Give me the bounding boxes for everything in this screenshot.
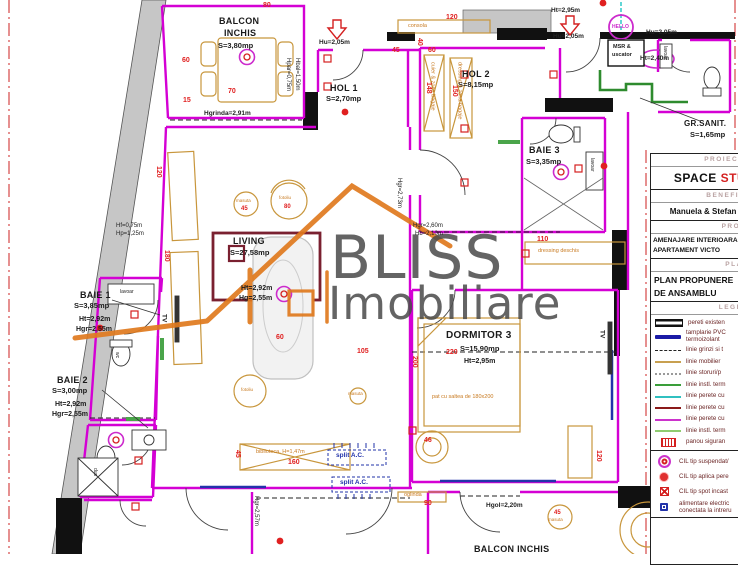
legend-item: linie grinzi si t — [651, 345, 738, 357]
legend-item: CIL tip spot incast — [651, 484, 738, 499]
sink-label: lavoar — [662, 46, 667, 60]
dimension-label: 45 — [234, 450, 241, 458]
legend: pereti existen tamplarie PVC termoizolan… — [651, 315, 738, 451]
room-balcon-bottom-name: BALCON INCHIS — [474, 545, 549, 555]
wardrobe-label: cuier & zona bagaje — [429, 62, 435, 111]
titleblock-header-proiect: PROIECT — [651, 221, 738, 234]
height-annotation: Hp=1,25m — [116, 231, 144, 237]
legend-item: alimentare electric conectata la intreru — [651, 499, 738, 514]
room-baie1-name: BAIE 1 — [80, 291, 111, 301]
legend-label: CIL tip suspendat/ — [679, 458, 729, 465]
dressing-label: dressing deschis — [538, 249, 579, 255]
bed-label: pat cu saltea de 180x200 — [432, 395, 493, 401]
room-dormitor3-ht: Ht=2,95m — [464, 358, 495, 366]
side-table-label: masuta — [348, 392, 363, 397]
tv-label: TV — [160, 314, 167, 322]
sink-label: lavoar — [589, 158, 594, 172]
couch — [253, 237, 313, 379]
legend-swatch-wall-line-magenta-icon — [655, 419, 681, 421]
legend-label: panou siguran — [686, 439, 725, 446]
legend-swatch-beam-line-icon — [655, 350, 681, 351]
room-baie2-hgr: Hgr=2,55m — [52, 411, 88, 419]
height-annotation: Hgol=2,20m — [486, 503, 523, 510]
hello-mat-label: HELLO — [612, 25, 629, 30]
titleblock-client: Manuela & Stefan Mo — [651, 203, 738, 221]
legend-item: linie instl. term — [651, 379, 738, 391]
titleblock-header-proiectant: PROIECTANT — [651, 154, 738, 167]
legend-label: linie instl. term — [686, 382, 726, 389]
dimension-label: 105 — [357, 348, 369, 355]
legend-swatch-pvc-window-icon — [655, 335, 681, 339]
legend-label: CIL tip aplica pere — [679, 473, 729, 480]
room-dormitor3-area: S=15,90mp — [460, 345, 499, 353]
dimension-label: 60 — [182, 57, 190, 64]
legend-swatch-wall-line-cyan-icon — [655, 396, 681, 398]
armchair-label: fotoliu — [279, 196, 291, 201]
dimension-label: 46 — [424, 437, 432, 444]
msr-label-line1: MSR & — [613, 45, 631, 51]
dimension-label: 120 — [155, 166, 162, 178]
sheet-line1: PLAN PROPUNERE — [654, 274, 738, 287]
height-annotation: Hu=2,05m — [646, 30, 677, 37]
height-annotation: Hbal=1,50m — [294, 58, 300, 91]
titleblock-header-plansa: PLANSA — [651, 259, 738, 272]
dimension-label: 40 — [416, 38, 423, 46]
legend-swatch-fusebox-icon — [655, 438, 681, 447]
titleblock-empty-box — [651, 518, 738, 564]
dimension-label: 120 — [595, 450, 602, 462]
project-line2: APARTAMENT VICTO — [653, 246, 738, 256]
side-table-dim: 45 — [554, 510, 561, 516]
room-living-ht: Ht=2,92m — [241, 285, 272, 293]
room-grsanit-name: GR.SANIT. — [684, 120, 726, 129]
room-baie2-name: BAIE 2 — [57, 376, 88, 386]
room-baie1-area: S=3,85mp — [74, 302, 109, 310]
cil-spot-icon — [657, 487, 671, 496]
sink-label: lavoar — [120, 290, 134, 295]
split-ac-label: split A.C. — [340, 480, 368, 487]
room-baie2-ht: Ht=2,92m — [55, 401, 86, 409]
legend-swatch-blinds-line-icon — [655, 373, 681, 375]
legend-item: linie instl. term — [651, 425, 738, 437]
room-hol1-area: S=2,70mp — [326, 95, 361, 103]
height-annotation: Ht=2,95m — [551, 8, 580, 15]
watermark-line2: Imobiliare — [328, 281, 561, 326]
legend-label: linie perete cu — [686, 405, 725, 412]
legend-label: CIL tip spot incast — [679, 488, 728, 495]
room-baie3-area: S=3,35mp — [526, 158, 561, 166]
legend-label: linie grinzi si t — [686, 347, 723, 354]
room-baie2-area: S=3,00mp — [52, 387, 87, 395]
dimension-label: 200 — [411, 356, 418, 368]
height-annotation: Hpar=0,75m — [285, 58, 291, 91]
room-living-hgr: Hg=2,55m — [239, 295, 272, 303]
beam-annotation: Hgrinda=2,91m — [204, 111, 251, 118]
sheet-line2: DE ANSAMBLU — [654, 287, 738, 300]
legend-label: termoizolant — [686, 337, 726, 344]
floor-plan-sheet: { "watermark": {"line1": "BLISS", "line2… — [0, 0, 738, 554]
dimension-label: 70 — [228, 88, 236, 95]
height-annotation: Hu=2,05m — [319, 40, 350, 47]
legend-swatch-existing-wall-icon — [655, 319, 683, 327]
titleblock-header-beneficiar: BENEFICIAR — [651, 190, 738, 203]
room-balcon-top-name1: BALCON — [219, 17, 259, 27]
legend-label: alimentare electric — [679, 500, 732, 507]
legend-item: CIL tip aplica pere — [651, 469, 738, 484]
room-dormitor3-name: DORMITOR 3 — [446, 330, 512, 341]
side-table-label: masuta — [548, 518, 563, 523]
room-hol2-area: S=8,15mp — [458, 81, 493, 89]
dimension-label: 60 — [276, 334, 284, 341]
legend-label: pereti existen — [688, 320, 725, 327]
legend-swatch-wall-line-darkred-icon — [655, 407, 681, 409]
dimension-label: 45 — [392, 47, 400, 54]
legend-label: linie storuri/p — [686, 370, 721, 377]
armchair-label: fotoliu — [241, 388, 253, 393]
dimension-label: 90 — [424, 500, 432, 507]
dimension-label: 15 — [183, 97, 191, 104]
room-hol1-name: HOL 1 — [330, 84, 358, 94]
dimension-label: 80 — [263, 2, 271, 9]
wardrobe-label: dressing & zona bagaje — [456, 62, 462, 119]
legend-item: pereti existen — [651, 317, 738, 329]
dimension-label: 120 — [446, 14, 458, 21]
height-annotation: Hgr=2,57m — [253, 496, 259, 526]
legend-label: linie perete cu — [686, 416, 725, 423]
legend-item: linie storuri/p — [651, 368, 738, 380]
tv-label: TV — [598, 330, 605, 338]
legend-label: linie perete cu — [686, 393, 725, 400]
height-annotation: Hb=2,10m — [415, 231, 443, 237]
height-annotation: Hu=2,05m — [553, 34, 584, 41]
mirror-label: oglinda — [404, 493, 422, 499]
legend-item: panou siguran — [651, 437, 738, 449]
titleblock-designer: SPACE STU — [651, 167, 738, 190]
legend-cil-section: CIL tip suspendat/ CIL tip aplica pere C… — [651, 451, 738, 518]
designer-name-black: SPACE — [674, 171, 721, 185]
dimension-label: 180 — [163, 250, 170, 262]
height-annotation: Hgr=2,73m — [396, 178, 402, 208]
cil-wall-icon — [657, 473, 671, 481]
msr-label-line2: uscator — [612, 53, 632, 59]
room-grsanit-area: S=1,65mp — [690, 131, 725, 139]
room-balcon-top-area: S=3,80mp — [218, 42, 253, 50]
room-baie1-ht: Ht=2,92m — [79, 316, 110, 324]
side-table-dim: 45 — [241, 206, 248, 212]
bookcase-label: biblioteca, H=1,47m — [256, 450, 305, 456]
legend-swatch-thermal-line-icon — [655, 384, 681, 386]
dimension-label: 60 — [428, 47, 436, 54]
height-annotation: Hgr=2,60m — [413, 223, 443, 229]
room-hol2-name: HOL 2 — [462, 70, 490, 80]
room-baie3-name: BAIE 3 — [529, 146, 560, 156]
legend-item: CIL tip suspendat/ — [651, 454, 738, 469]
side-table-label: masuta — [236, 199, 251, 204]
cil-suspended-icon — [657, 455, 671, 468]
room-living-name: LIVING — [233, 237, 265, 247]
legend-label: conectata la intreru — [679, 507, 732, 514]
legend-item: linie mobilier — [651, 356, 738, 368]
legend-item: tamplarie PVC termoizolant — [651, 329, 738, 345]
height-annotation: Hf=0,75m — [116, 223, 142, 229]
title-block: PROIECTANT SPACE STU BENEFICIAR Manuela … — [650, 153, 738, 565]
console-label: consola — [408, 24, 427, 30]
titleblock-header-legenda: LEGENDA — [651, 302, 738, 315]
designer-name-red: STU — [721, 171, 738, 185]
shower-label: dus — [92, 468, 97, 476]
legend-swatch-thermal-line2-icon — [655, 430, 681, 432]
dimension-label: 220 — [446, 349, 458, 356]
legend-item: linie perete cu — [651, 402, 738, 414]
dimension-label: 110 — [537, 236, 548, 243]
legend-item: linie perete cu — [651, 414, 738, 426]
legend-item: linie perete cu — [651, 391, 738, 403]
armchair-dim: 80 — [284, 204, 291, 210]
room-balcon-top-name2: INCHIS — [224, 29, 256, 39]
split-ac-label: split A.C. — [336, 453, 364, 460]
room-living-area: S=27,58mp — [230, 249, 269, 257]
project-line1: AMENAJARE INTERIOARA — [653, 236, 738, 246]
legend-label: linie mobilier — [686, 359, 720, 366]
legend-label: linie instl. term — [686, 428, 726, 435]
wc-label: wc — [114, 352, 119, 358]
titleblock-project: AMENAJARE INTERIOARA APARTAMENT VICTO — [651, 234, 738, 259]
legend-swatch-furniture-line-icon — [655, 361, 681, 363]
dimension-label: 160 — [288, 459, 300, 466]
titleblock-sheet: PLAN PROPUNERE DE ANSAMBLU — [651, 272, 738, 303]
electric-supply-icon — [657, 503, 671, 511]
room-baie1-hgr: Hgr=2,55m — [76, 326, 112, 334]
